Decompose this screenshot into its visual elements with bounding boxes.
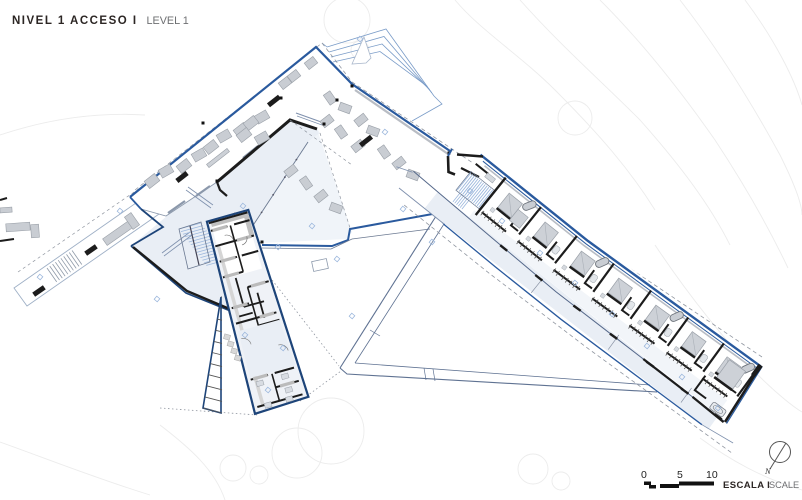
svg-text:ESCALA I: ESCALA I <box>723 480 770 491</box>
svg-text:0: 0 <box>641 469 647 481</box>
svg-text:LEVEL 1: LEVEL 1 <box>147 15 189 27</box>
svg-text:SCALE: SCALE <box>769 480 799 490</box>
svg-text:10: 10 <box>706 469 718 481</box>
svg-text:NIVEL 1 ACCESO I: NIVEL 1 ACCESO I <box>12 15 138 27</box>
svg-text:5: 5 <box>677 469 683 481</box>
